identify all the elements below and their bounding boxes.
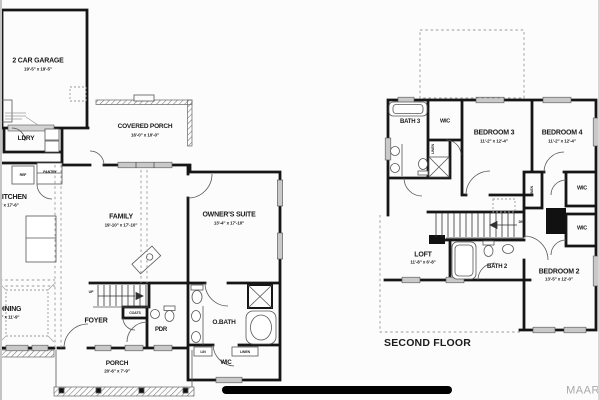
appliance-label-pantry: PANTRY	[43, 170, 56, 174]
room-dim-bedroom3: 11'-2" x 12'-4"	[480, 138, 508, 143]
room-label-foyer: FOYER	[84, 318, 107, 325]
room-label-powder: PDR	[155, 327, 167, 333]
closet-label-linen-bedroom2: LINEN	[530, 186, 534, 196]
stairs-dn-label: DN	[519, 220, 524, 224]
room-label-covered-porch: COVERED PORCH	[118, 124, 173, 131]
closet-label-linen-hall: LINEN	[431, 144, 435, 154]
room-label-laundry: LDRY	[18, 136, 35, 143]
redaction-bar	[222, 386, 452, 394]
room-dim-covered-porch: 16'-0" x 10'-0"	[131, 132, 159, 137]
room-label-owners-suite: OWNER'S SUITE	[202, 212, 255, 219]
room-label-bath3: BATH 3	[400, 119, 420, 125]
closet-label-coats: COATS	[129, 311, 140, 315]
room-dim-family: 19'-10" x 17'-10"	[105, 222, 138, 227]
room-label-owners-bath: O.BATH	[212, 320, 235, 327]
room-label-bedroom4: BEDROOM 4	[542, 130, 583, 137]
room-dim-loft: 11'-8" x 6'-8"	[410, 260, 435, 265]
labels-layer: 2 CAR GARAGE 19'-5" x 19'-5" COVERED POR…	[0, 0, 600, 400]
room-label-garage: 2 CAR GARAGE	[12, 58, 63, 65]
room-dim-bedroom4: 11'-2" x 12'-4"	[548, 138, 576, 143]
appliance-label-ref: REF	[20, 173, 27, 177]
left-edge-bar	[0, 0, 2, 400]
room-dim-kitchen: 11'-5" x 17'-6"	[0, 203, 19, 208]
room-label-wic: WIC	[220, 360, 231, 366]
room-label-bedroom3: BEDROOM 3	[474, 130, 515, 137]
room-dim-owners-suite: 13'-4" x 17'-10"	[214, 220, 244, 225]
watermark: MAAR	[566, 386, 600, 397]
floor-plan-page: 2 CAR GARAGE 19'-5" x 19'-5" COVERED POR…	[0, 0, 600, 400]
second-floor-title: SECOND FLOOR	[384, 338, 471, 349]
room-label-wic-bedroom2: WIC	[577, 226, 587, 232]
closet-label-lin: LIN	[200, 350, 205, 354]
room-dim-dining: 11'-5" x 11'-9"	[0, 315, 19, 320]
stairs-up-label: UP	[89, 290, 94, 294]
closet-label-linen: LINEN	[240, 350, 250, 354]
room-label-wic-bedroom4: WIC	[577, 186, 587, 192]
room-dim-porch: 20'-6" x 7'-9"	[104, 369, 130, 374]
room-label-bath2: BATH 2	[487, 264, 507, 270]
room-label-loft: LOFT	[414, 252, 431, 259]
room-dim-garage: 19'-5" x 19'-5"	[24, 67, 52, 72]
room-label-kitchen: KITCHEN	[0, 194, 27, 201]
room-label-wic-hall: WIC	[440, 119, 450, 125]
room-label-bedroom2: BEDROOM 2	[539, 268, 580, 275]
room-dim-bedroom2: 13'-5" x 12'-0"	[545, 277, 573, 282]
room-label-family: FAMILY	[109, 214, 133, 221]
room-label-dining: DINING	[0, 306, 21, 313]
room-label-porch: PORCH	[106, 361, 128, 368]
